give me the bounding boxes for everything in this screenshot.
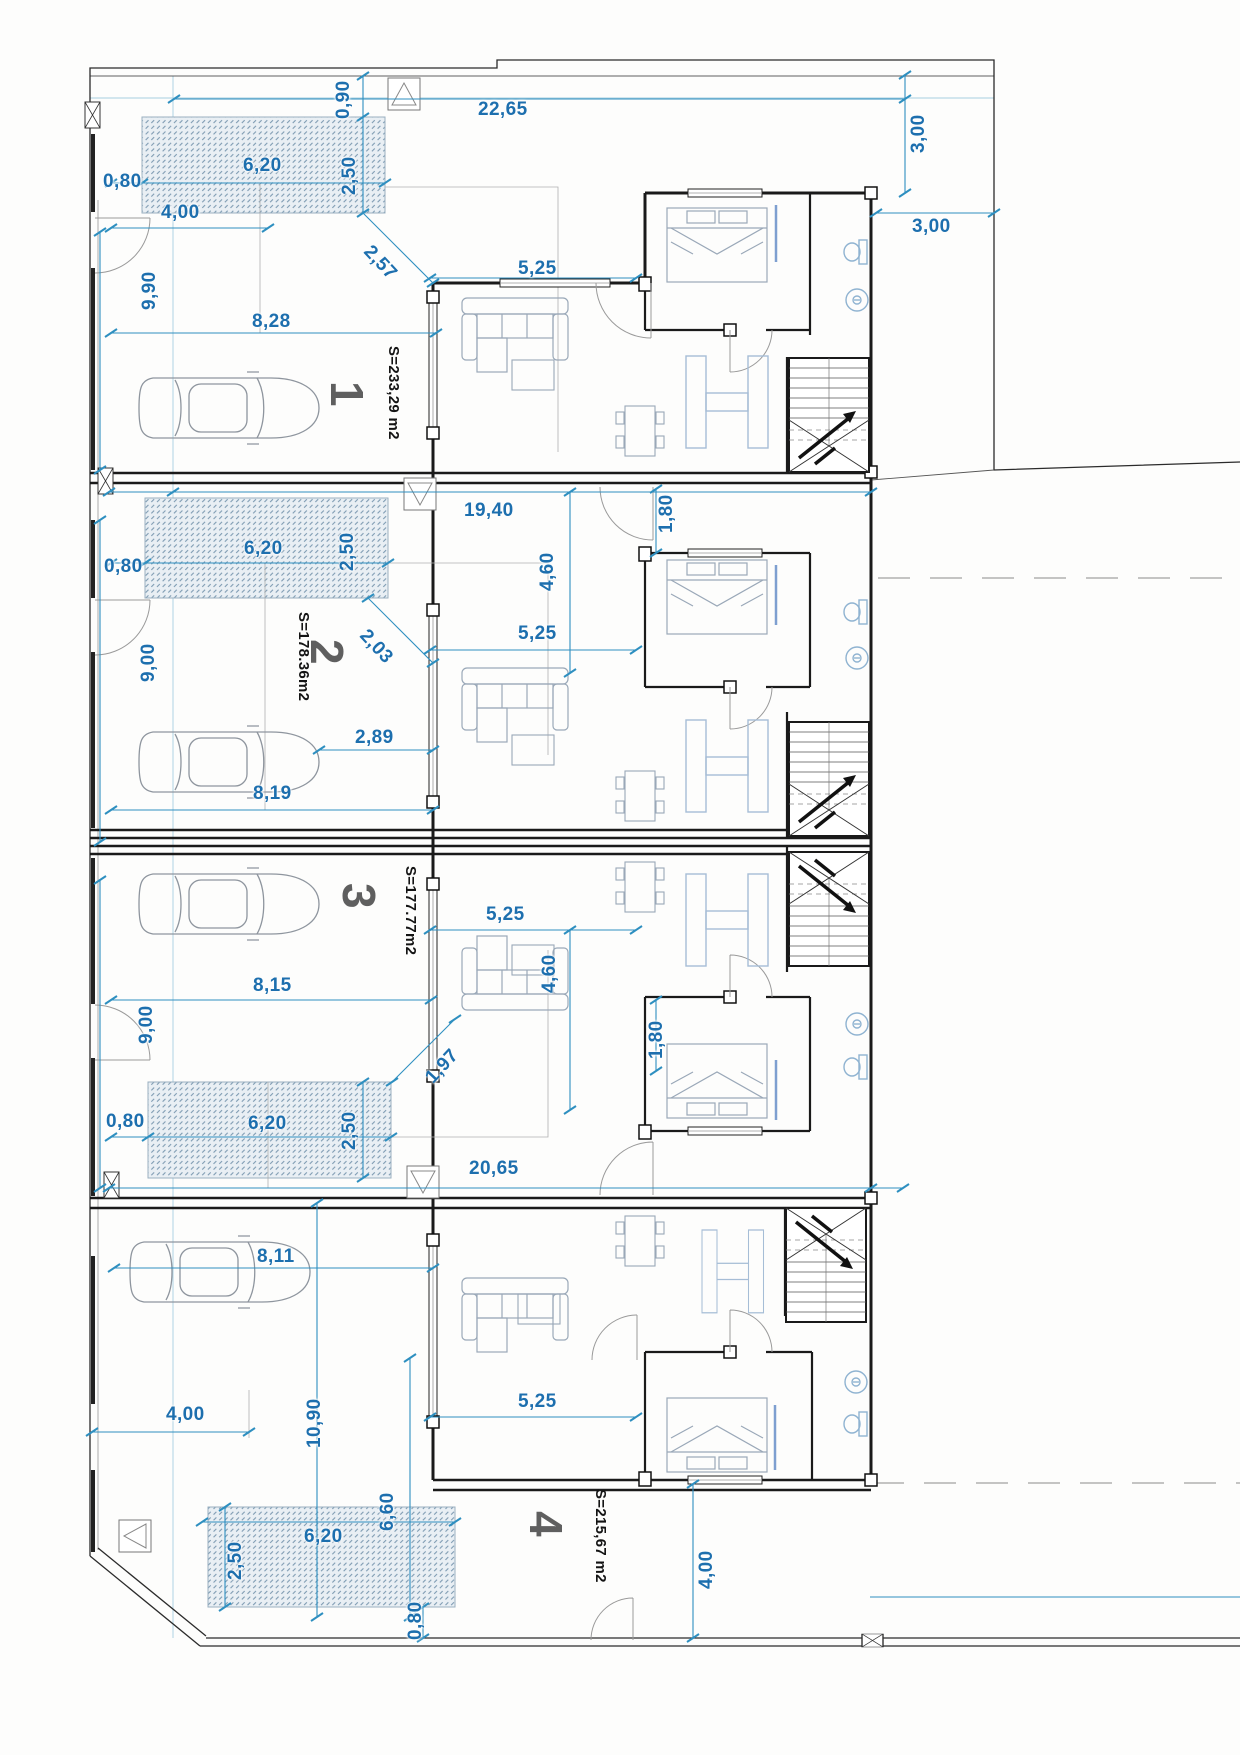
bed-icon: [667, 1044, 767, 1118]
stairs-icon: [789, 358, 869, 472]
bed-icon: [667, 208, 767, 282]
dim-0-80-u2: 0,80: [104, 557, 143, 576]
dim-8-19: 8,19: [253, 784, 292, 803]
dim-6-20-u3: 6,20: [248, 1114, 287, 1133]
area-label-unit-1: S=233,29 m2: [386, 346, 401, 440]
dim-5-25-u3: 5,25: [486, 905, 525, 924]
neighbor-dashed-lines: [872, 578, 1240, 1483]
dim-5-25-u1: 5,25: [518, 259, 557, 278]
dim-9-90: 9,90: [140, 271, 159, 310]
dim-0-80-u4: 0,80: [406, 1601, 425, 1640]
dim-2-50-u3: 2,50: [340, 1111, 359, 1150]
dim-19-40: 19,40: [464, 501, 514, 520]
sink-icon: [846, 289, 868, 311]
dim-6-20-u2: 6,20: [244, 539, 283, 558]
car-icon: [139, 726, 319, 798]
kitchens: [686, 356, 768, 1313]
sofas: [462, 298, 568, 1352]
triangle-marker-icon: [119, 1520, 151, 1552]
dim-8-11: 8,11: [257, 1247, 295, 1266]
triangle-marker-icon: [404, 478, 436, 510]
unit-number-1: 1: [324, 381, 370, 407]
area-label-unit-4: S=215,67 m2: [593, 1489, 608, 1583]
coffee-tables: [512, 360, 560, 1324]
dim-4-60-u2: 4,60: [538, 552, 557, 591]
dim-6-20-u4: 6,20: [304, 1527, 343, 1546]
sofa-icon: [462, 1278, 568, 1352]
dim-5-25-u4: 5,25: [518, 1392, 557, 1411]
coffee-table-icon: [512, 360, 554, 390]
dim-2-50-u1: 2,50: [340, 156, 359, 195]
column-marker-icon: [862, 1634, 883, 1647]
dim-9-00-u2: 9,00: [139, 643, 158, 682]
car-icon: [139, 372, 319, 444]
dim-1-80-u2: 1,80: [657, 494, 676, 533]
dim-0-80-u3: 0,80: [106, 1112, 145, 1131]
dim-8-15: 8,15: [253, 976, 292, 995]
dim-2-50-u2: 2,50: [338, 532, 357, 571]
unit-number-4: 4: [523, 1511, 569, 1537]
sofa-icon: [462, 298, 568, 372]
dim-0-80-u1: 0,80: [103, 172, 142, 191]
sink-icon: [846, 647, 868, 669]
dining-table-icon: [616, 406, 664, 456]
dim-2-50-u4: 2,50: [226, 1541, 245, 1580]
dim-4-00-u4-v: 4,00: [697, 1550, 716, 1589]
toilet-icon: [844, 600, 867, 624]
triangle-marker-icon: [388, 78, 420, 110]
toilet-icon: [844, 1055, 867, 1079]
dining-table-icon: [616, 771, 664, 821]
sink-icon: [845, 1371, 867, 1393]
kitchen-counter-icon: [686, 720, 768, 812]
bed-icon: [667, 1398, 767, 1472]
dim-22-65: 22,65: [478, 100, 528, 119]
dim-3-00-h: 3,00: [912, 217, 951, 236]
dining-table-icon: [616, 1216, 664, 1266]
dim-8-28: 8,28: [252, 312, 291, 331]
dim-1-80-u3: 1,80: [647, 1020, 666, 1059]
triangle-marker-icon: [407, 1166, 439, 1198]
dim-9-00-u3: 9,00: [137, 1005, 156, 1044]
bed-icon: [667, 560, 767, 634]
unit-number-2: 2: [304, 639, 350, 665]
dim-6-20-u1: 6,20: [243, 156, 282, 175]
stairs-icon: [789, 852, 869, 966]
stairs-icon: [789, 722, 869, 836]
dim-2-89: 2,89: [355, 728, 394, 747]
kitchen-counter-icon: [686, 874, 768, 966]
stairs: [786, 358, 869, 1322]
dim-3-00-v: 3,00: [909, 114, 928, 153]
dim-6-60: 6,60: [378, 1492, 397, 1531]
kitchen-counter-icon: [686, 356, 768, 448]
dim-4-60-u3: 4,60: [540, 954, 559, 993]
column-marker-icon: [85, 102, 100, 128]
floor-plan-drawing: [0, 0, 1240, 1755]
floor-plan-page: 0,90 22,65 3,00 3,00 6,20 2,50 0,80 4,00…: [0, 0, 1240, 1755]
kitchen-counter-icon: [702, 1230, 764, 1313]
dim-4-00-u4: 4,00: [166, 1405, 205, 1424]
dim-20-65: 20,65: [469, 1159, 519, 1178]
dim-0-90: 0,90: [334, 80, 353, 119]
stairs-icon: [786, 1208, 866, 1322]
toilet-icon: [844, 1412, 867, 1436]
windows: [429, 189, 762, 1484]
sofa-icon: [462, 668, 568, 742]
party-walls: [90, 473, 871, 1490]
toilet-icon: [844, 240, 867, 264]
dim-10-90: 10,90: [305, 1398, 324, 1448]
unit-number-3: 3: [336, 883, 382, 909]
dining-table-icon: [616, 862, 664, 912]
area-label-unit-3: S=177.77m2: [403, 866, 418, 955]
parking-pads: [142, 117, 455, 1607]
dim-4-00-u1: 4,00: [161, 203, 200, 222]
sink-icon: [846, 1013, 868, 1035]
car-icon: [139, 868, 319, 940]
dim-5-25-u2: 5,25: [518, 624, 557, 643]
coffee-table-icon: [518, 1294, 560, 1324]
